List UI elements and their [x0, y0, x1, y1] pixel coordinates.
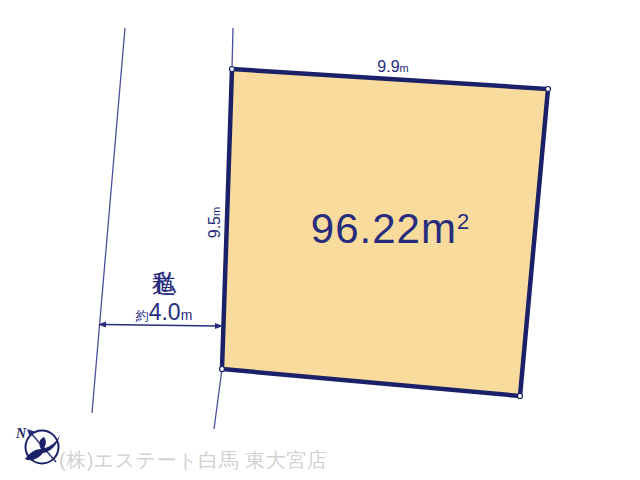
left-dimension-label: 9.5m: [206, 197, 223, 249]
company-watermark: (株)エステート白馬 東大宮店: [59, 447, 327, 474]
road-name-label: 私道: [148, 251, 180, 257]
road-width-prefix: 約: [136, 308, 149, 323]
land-plot-diagram: N 9.9m 9.5m 96.22m2 私道 約4.0m (株)エステート白馬 …: [0, 0, 640, 480]
road-right-edge-upper-line: [232, 28, 233, 69]
top-dimension-value: 9.9: [377, 58, 399, 75]
left-dimension-value: 9.5: [206, 216, 223, 238]
road-width-value: 4.0: [149, 299, 181, 325]
top-dimension-label: 9.9m: [372, 58, 414, 76]
vertex-marker: [546, 87, 551, 92]
road-left-edge-line: [92, 28, 125, 413]
vertex-marker: [230, 67, 235, 72]
road-right-edge-lower-line: [214, 369, 222, 429]
area-value: 96.22: [311, 205, 421, 252]
area-exponent: 2: [457, 209, 469, 234]
top-dimension-unit: m: [400, 62, 409, 74]
north-label: N: [15, 426, 27, 441]
left-dimension-unit: m: [210, 207, 222, 216]
road-width-unit: m: [181, 307, 193, 323]
vertex-marker: [518, 394, 523, 399]
vertex-marker: [220, 367, 225, 372]
road-width-label: 約4.0m: [128, 299, 200, 326]
area-unit: m: [421, 205, 457, 252]
parcel-area-label: 96.22m2: [285, 206, 495, 252]
compass-north-icon: N: [15, 426, 60, 464]
